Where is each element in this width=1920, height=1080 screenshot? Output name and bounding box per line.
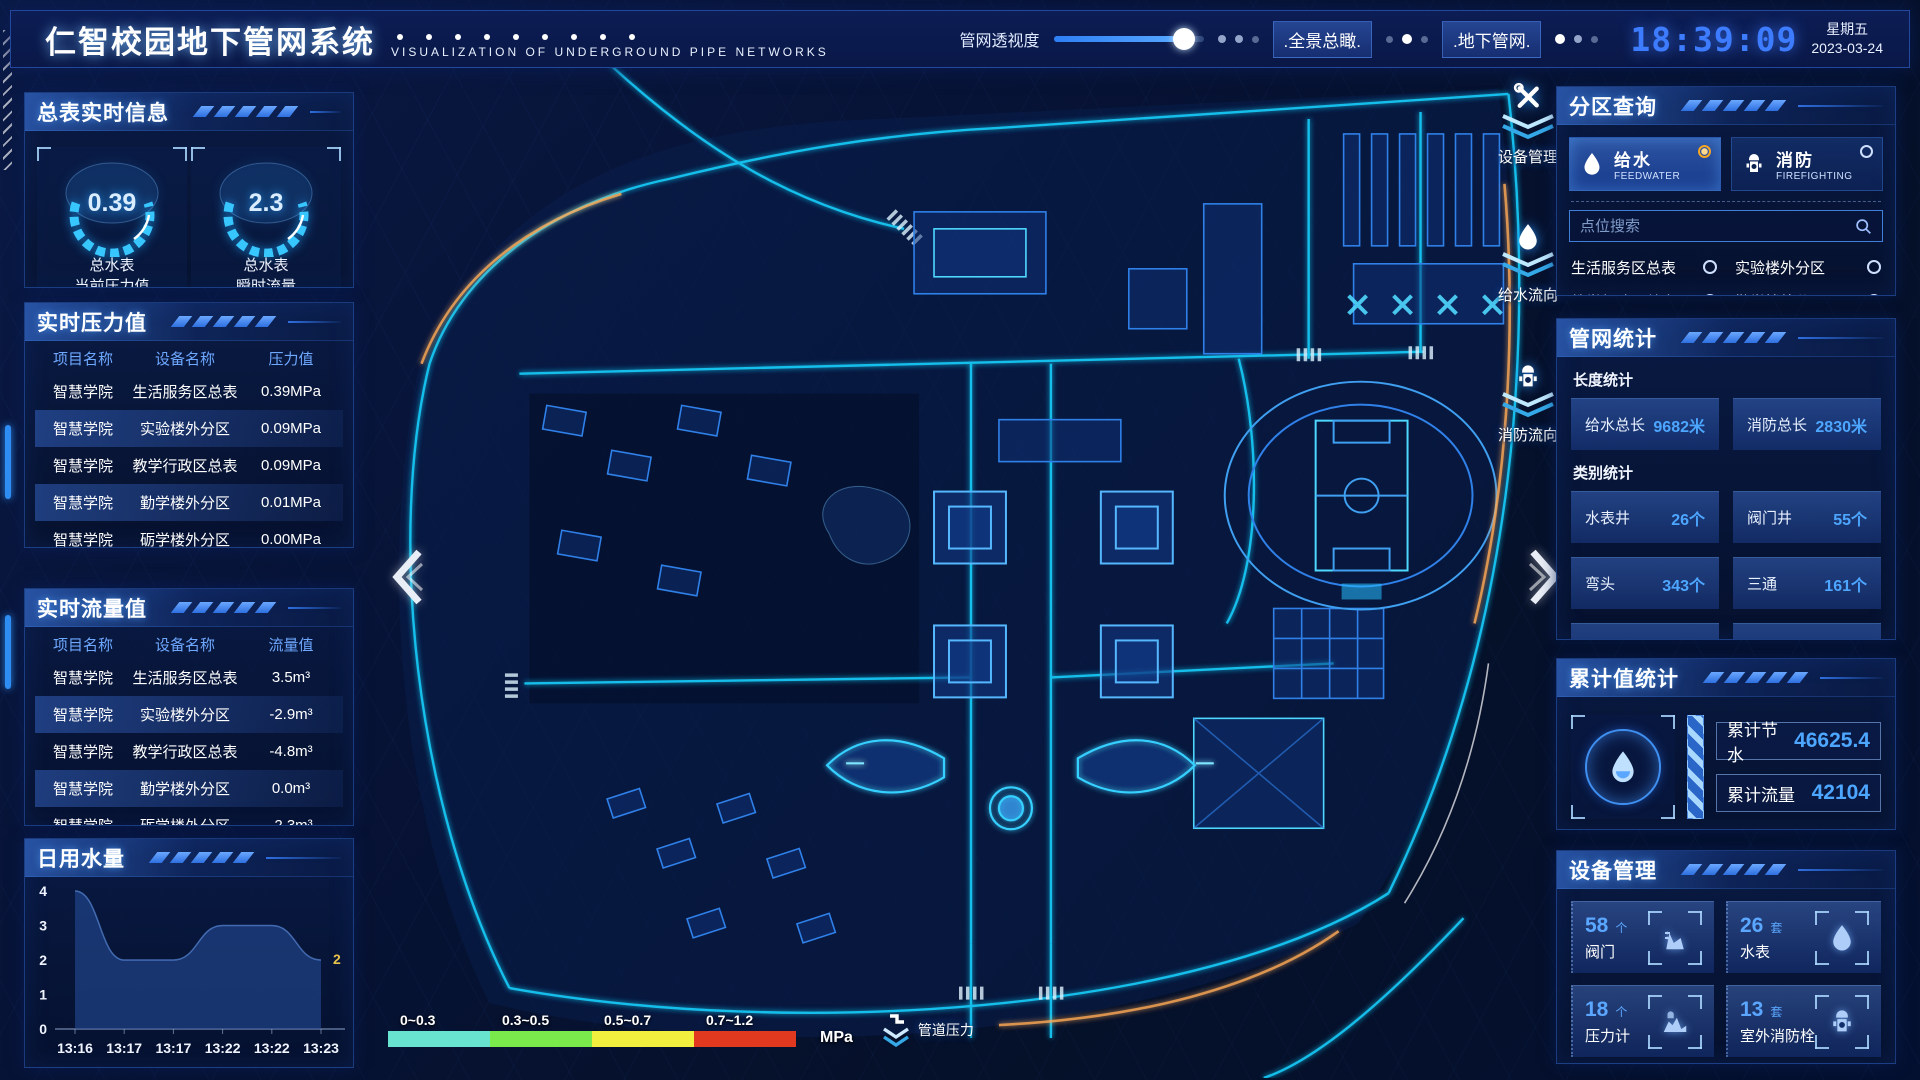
panel-title: 日用水量	[37, 843, 125, 873]
legend-range: 0.3~0.5	[490, 1012, 592, 1028]
slider-thumb[interactable]	[1173, 28, 1195, 50]
realtime-pressure-panel: 实时压力值 项目名称设备名称压力值 智慧学院生活服务区总表0.39MPa 智慧学…	[24, 302, 354, 548]
svg-text:0: 0	[39, 1021, 47, 1037]
point-search-input[interactable]	[1580, 218, 1855, 235]
svg-text:4: 4	[39, 883, 47, 899]
table-row[interactable]: 智慧学院生活服务区总表3.5m³	[35, 659, 343, 696]
hydrant-icon	[1815, 995, 1869, 1049]
stat-card: 消防总长2830米	[1733, 398, 1881, 450]
gauge-label: 总水表	[37, 255, 187, 276]
slashes-decoration	[1685, 332, 1782, 343]
table-header: 项目名称设备名称流量值	[35, 629, 343, 659]
legend-range: 0.5~0.7	[592, 1012, 694, 1028]
zone-item[interactable]: 勤学楼外分区	[1735, 284, 1881, 296]
table-row[interactable]: 智慧学院实验楼外分区0.09MPa	[35, 410, 343, 447]
svg-text:2: 2	[333, 951, 341, 967]
gauge-value: 0.39	[37, 189, 187, 218]
pipe-opacity-label: 管网透视度	[960, 27, 1040, 51]
valve-icon	[1648, 911, 1702, 965]
point-search-box[interactable]	[1569, 210, 1883, 242]
zone-query-panel: 分区查询 给水 FEEDWATER 消防	[1556, 86, 1896, 296]
stat-card: 阀门井55个	[1733, 491, 1881, 543]
svg-text:13:22: 13:22	[205, 1040, 241, 1056]
pipe-stats-panel: 管网统计 长度统计 给水总长9682米 消防总长2830米 类别统计 水表井26…	[1556, 318, 1896, 640]
svg-text:1: 1	[39, 987, 47, 1003]
tab-radio[interactable]	[1860, 145, 1873, 158]
device-management-panel: 设备管理 58个 阀门 26套	[1556, 850, 1896, 1064]
slashes-decoration	[175, 316, 272, 327]
table-row[interactable]: 智慧学院生活服务区总表0.39MPa	[35, 373, 343, 410]
edge-decoration	[5, 425, 11, 499]
slashes-decoration	[175, 602, 272, 613]
panel-title: 总表实时信息	[37, 97, 169, 127]
panel-title: 实时流量值	[37, 593, 147, 623]
panorama-overview-button[interactable]: .全景总瞰.	[1273, 21, 1372, 58]
table-header: 项目名称设备名称压力值	[35, 343, 343, 373]
hydrant-icon	[1742, 151, 1766, 177]
pressure-legend: 0~0.3 0.3~0.5 0.5~0.7 0.7~1.2 MPa 管道压力	[388, 1012, 974, 1047]
pipe-pressure-icon	[881, 1013, 911, 1047]
pressure-gauge: 0.39 总水表 当前压力值	[37, 147, 187, 288]
panel-title: 实时压力值	[37, 307, 147, 337]
date: 2023-03-24	[1811, 39, 1883, 58]
category-stats-label: 类别统计	[1573, 462, 1879, 483]
daily-water-chart: 0123413:1613:1713:1713:2213:2213:232	[25, 877, 353, 1065]
zone-item[interactable]: 生活服务区总表	[1571, 250, 1717, 284]
realtime-flow-panel: 实时流量值 项目名称设备名称流量值 智慧学院生活服务区总表3.5m³ 智慧学院实…	[24, 588, 354, 826]
table-row[interactable]: 智慧学院勤学楼外分区0.01MPa	[35, 484, 343, 521]
water-meter-icon	[1815, 911, 1869, 965]
dots-decoration	[1555, 34, 1598, 44]
weekday: 星期五	[1811, 20, 1883, 39]
water-drop-icon	[1606, 748, 1640, 786]
daily-water-panel: 日用水量 0123413:1613:1713:1713:2213:2213:23…	[24, 838, 354, 1068]
slashes-decoration	[197, 106, 294, 117]
table-row[interactable]: 智慧学院砺学楼外分区0.00MPa	[35, 521, 343, 548]
edge-decoration	[5, 615, 11, 689]
zone-item[interactable]: 实验楼外分区	[1735, 250, 1881, 284]
water-drop-icon	[1580, 151, 1604, 177]
svg-text:13:23: 13:23	[303, 1040, 339, 1056]
dots-decoration	[1386, 34, 1428, 44]
table-row[interactable]: 智慧学院实验楼外分区-2.9m³	[35, 696, 343, 733]
app-subtitle: VISUALIZATION OF UNDERGROUND PIPE NETWOR…	[391, 45, 829, 59]
total-water-saved: 累计节水46625.4	[1716, 722, 1881, 760]
table-row[interactable]: 智慧学院教学行政区总表0.09MPa	[35, 447, 343, 484]
total-flow: 累计流量42104	[1716, 774, 1881, 812]
legend-range: 0~0.3	[388, 1012, 490, 1028]
device-card-water-meter[interactable]: 26套 水表	[1726, 901, 1881, 973]
legend-range: 0.7~1.2	[694, 1012, 796, 1028]
slider-fill	[1054, 36, 1183, 42]
svg-text:2: 2	[39, 952, 47, 968]
totals-panel: 累计值统计 累计节水46625.4 累计流量42104	[1556, 658, 1896, 830]
zone-item[interactable]: 教学行政区总表	[1571, 284, 1717, 296]
zone-radio[interactable]	[1867, 260, 1881, 274]
length-stats-label: 长度统计	[1573, 369, 1879, 390]
slashes-decoration	[1685, 864, 1782, 875]
flow-gauge: 2.3 总水表 瞬时流量	[191, 147, 341, 288]
panel-title: 分区查询	[1569, 91, 1657, 121]
gauge-value: 2.3	[191, 189, 341, 218]
meter-realtime-panel: 总表实时信息 0.39 总水表 当前压力值	[24, 92, 354, 288]
chevron-stack-icon	[1498, 392, 1558, 418]
campus-map[interactable]	[358, 64, 1550, 1078]
map-prev-arrow[interactable]	[388, 548, 424, 606]
panel-title: 管网统计	[1569, 323, 1657, 353]
title-dots-decoration	[391, 34, 829, 40]
tab-feedwater[interactable]: 给水 FEEDWATER	[1569, 137, 1721, 191]
gauge-label: 当前压力值	[37, 276, 187, 288]
svg-text:3: 3	[39, 918, 47, 934]
pipe-opacity-slider[interactable]	[1054, 36, 1204, 42]
legend-unit: MPa	[820, 1029, 853, 1047]
stat-card: 三通161个	[1733, 557, 1881, 609]
tab-radio[interactable]	[1698, 145, 1711, 158]
device-card-hydrant[interactable]: 13套 室外消防栓	[1726, 985, 1881, 1057]
legend-color-bar	[388, 1031, 796, 1047]
stat-card: 弯头343个	[1571, 557, 1719, 609]
tab-label: 给水	[1614, 146, 1680, 171]
panel-title: 设备管理	[1569, 855, 1657, 885]
stat-card	[1571, 623, 1719, 640]
clock: 18:39:09	[1630, 20, 1797, 59]
table-row[interactable]: 智慧学院教学行政区总表-4.8m³	[35, 733, 343, 770]
dots-decoration	[1218, 35, 1259, 43]
stat-card: 水表井26个	[1571, 491, 1719, 543]
header-bar: 仁智校园地下管网系统 VISUALIZATION OF UNDERGROUND …	[10, 10, 1910, 68]
svg-text:13:17: 13:17	[155, 1040, 191, 1056]
zone-radio[interactable]	[1867, 294, 1881, 296]
slashes-decoration	[1707, 672, 1804, 683]
stripes-decoration	[1687, 715, 1704, 819]
legend-label: 管道压力	[918, 1020, 974, 1040]
zone-radio[interactable]	[1703, 260, 1717, 274]
gauge-label: 总水表	[191, 255, 341, 276]
tab-sublabel: FIREFIGHTING	[1776, 171, 1853, 182]
stat-card	[1733, 623, 1881, 640]
gauge-label: 瞬时流量	[191, 276, 341, 288]
zone-radio[interactable]	[1703, 294, 1717, 296]
slashes-decoration	[153, 852, 250, 863]
panel-title: 累计值统计	[1569, 663, 1679, 693]
svg-text:13:16: 13:16	[57, 1040, 93, 1056]
svg-text:13:22: 13:22	[254, 1040, 290, 1056]
pressure-gauge-icon	[1648, 995, 1702, 1049]
water-saving-badge	[1571, 715, 1675, 819]
table-row[interactable]: 智慧学院砺学楼外分区-2.3m³	[35, 807, 343, 826]
device-card-pressure-gauge[interactable]: 18个 压力计	[1571, 985, 1714, 1057]
svg-text:13:17: 13:17	[106, 1040, 142, 1056]
tab-label: 消防	[1776, 146, 1853, 171]
search-icon	[1855, 218, 1872, 235]
underground-pipes-button[interactable]: .地下管网.	[1442, 21, 1541, 58]
app-title: 仁智校园地下管网系统	[45, 17, 375, 62]
dashboard: 设备管理 给水流向 消防流向 0~0.3	[0, 0, 1920, 1080]
slashes-decoration	[1685, 100, 1782, 111]
tab-firefighting[interactable]: 消防 FIREFIGHTING	[1731, 137, 1883, 191]
chevron-stack-icon	[1498, 114, 1558, 140]
stat-card: 给水总长9682米	[1571, 398, 1719, 450]
table-row[interactable]: 智慧学院勤学楼外分区0.0m³	[35, 770, 343, 807]
tab-sublabel: FEEDWATER	[1614, 171, 1680, 182]
device-card-valve[interactable]: 58个 阀门	[1571, 901, 1714, 973]
chevron-stack-icon	[1498, 252, 1558, 278]
